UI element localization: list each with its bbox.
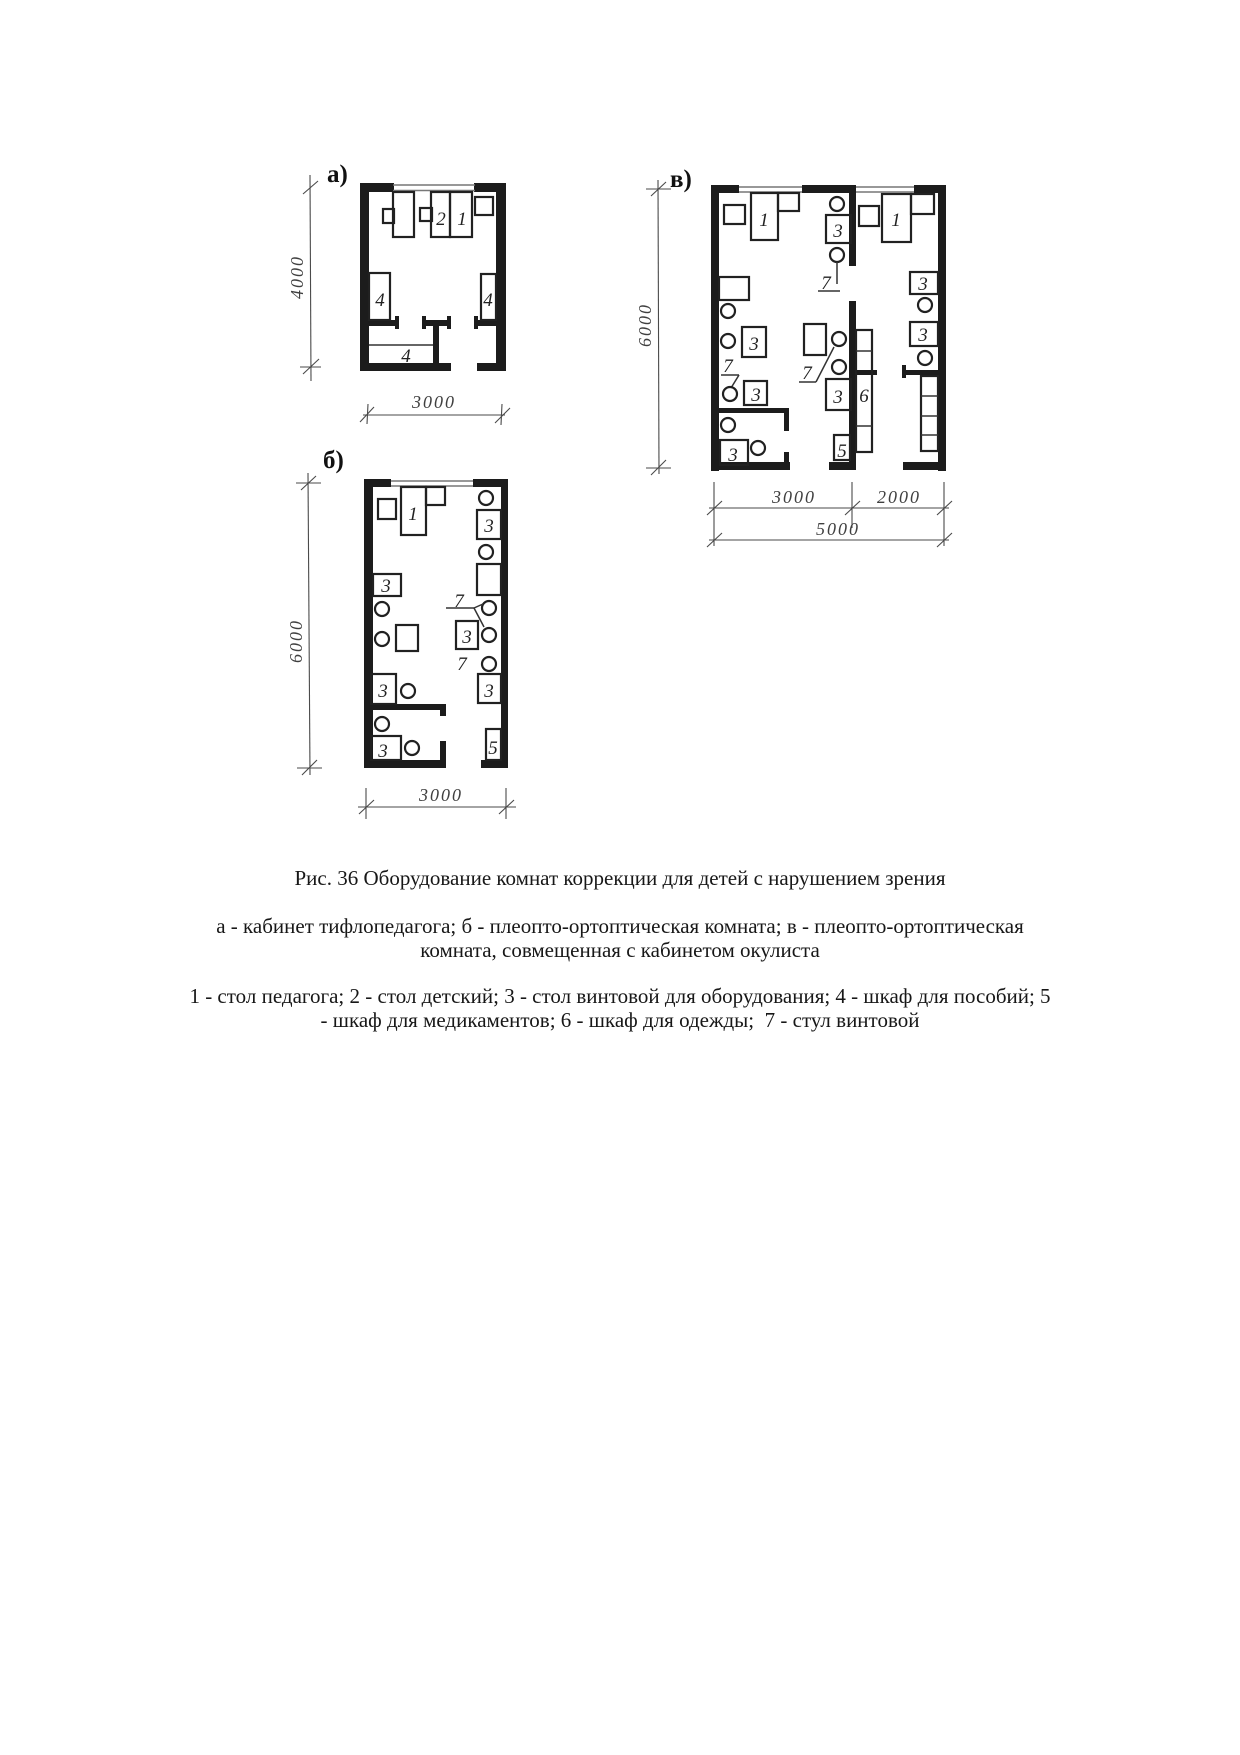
svg-text:7: 7 bbox=[457, 654, 468, 675]
svg-text:3: 3 bbox=[377, 681, 388, 702]
svg-text:б): б) bbox=[323, 447, 344, 474]
svg-text:3: 3 bbox=[917, 325, 928, 346]
svg-text:3: 3 bbox=[483, 681, 494, 702]
svg-text:3: 3 bbox=[377, 741, 388, 762]
svg-text:4: 4 bbox=[401, 346, 411, 367]
svg-text:1: 1 bbox=[891, 210, 901, 231]
svg-text:5: 5 bbox=[488, 738, 498, 759]
svg-text:3: 3 bbox=[917, 274, 928, 295]
svg-text:4000: 4000 bbox=[287, 255, 307, 299]
svg-text:3000: 3000 bbox=[411, 392, 456, 412]
svg-text:3: 3 bbox=[483, 516, 494, 537]
svg-text:3: 3 bbox=[727, 445, 738, 466]
svg-text:3: 3 bbox=[750, 385, 761, 406]
svg-text:в): в) bbox=[670, 166, 692, 193]
svg-text:3: 3 bbox=[380, 576, 391, 597]
svg-text:1: 1 bbox=[408, 504, 418, 525]
svg-text:3: 3 bbox=[748, 334, 759, 355]
svg-text:3: 3 bbox=[832, 387, 843, 408]
svg-text:2: 2 bbox=[436, 209, 446, 230]
svg-text:3: 3 bbox=[461, 627, 472, 648]
svg-text:5: 5 bbox=[837, 441, 847, 462]
svg-text:3: 3 bbox=[832, 221, 843, 242]
svg-text:1: 1 bbox=[457, 209, 467, 230]
svg-text:3000: 3000 bbox=[418, 785, 463, 805]
svg-text:а): а) bbox=[327, 161, 348, 188]
svg-text:2000: 2000 bbox=[877, 487, 921, 507]
svg-text:6000: 6000 bbox=[635, 303, 655, 347]
svg-text:4: 4 bbox=[375, 290, 385, 311]
svg-text:7: 7 bbox=[723, 356, 734, 377]
svg-text:1: 1 bbox=[759, 210, 769, 231]
svg-text:7: 7 bbox=[802, 363, 813, 384]
svg-text:5000: 5000 bbox=[816, 519, 860, 539]
svg-text:3000: 3000 bbox=[771, 487, 816, 507]
svg-text:7: 7 bbox=[454, 591, 465, 612]
svg-text:6: 6 bbox=[859, 386, 869, 407]
svg-text:6000: 6000 bbox=[286, 619, 306, 663]
svg-text:4: 4 bbox=[483, 290, 493, 311]
